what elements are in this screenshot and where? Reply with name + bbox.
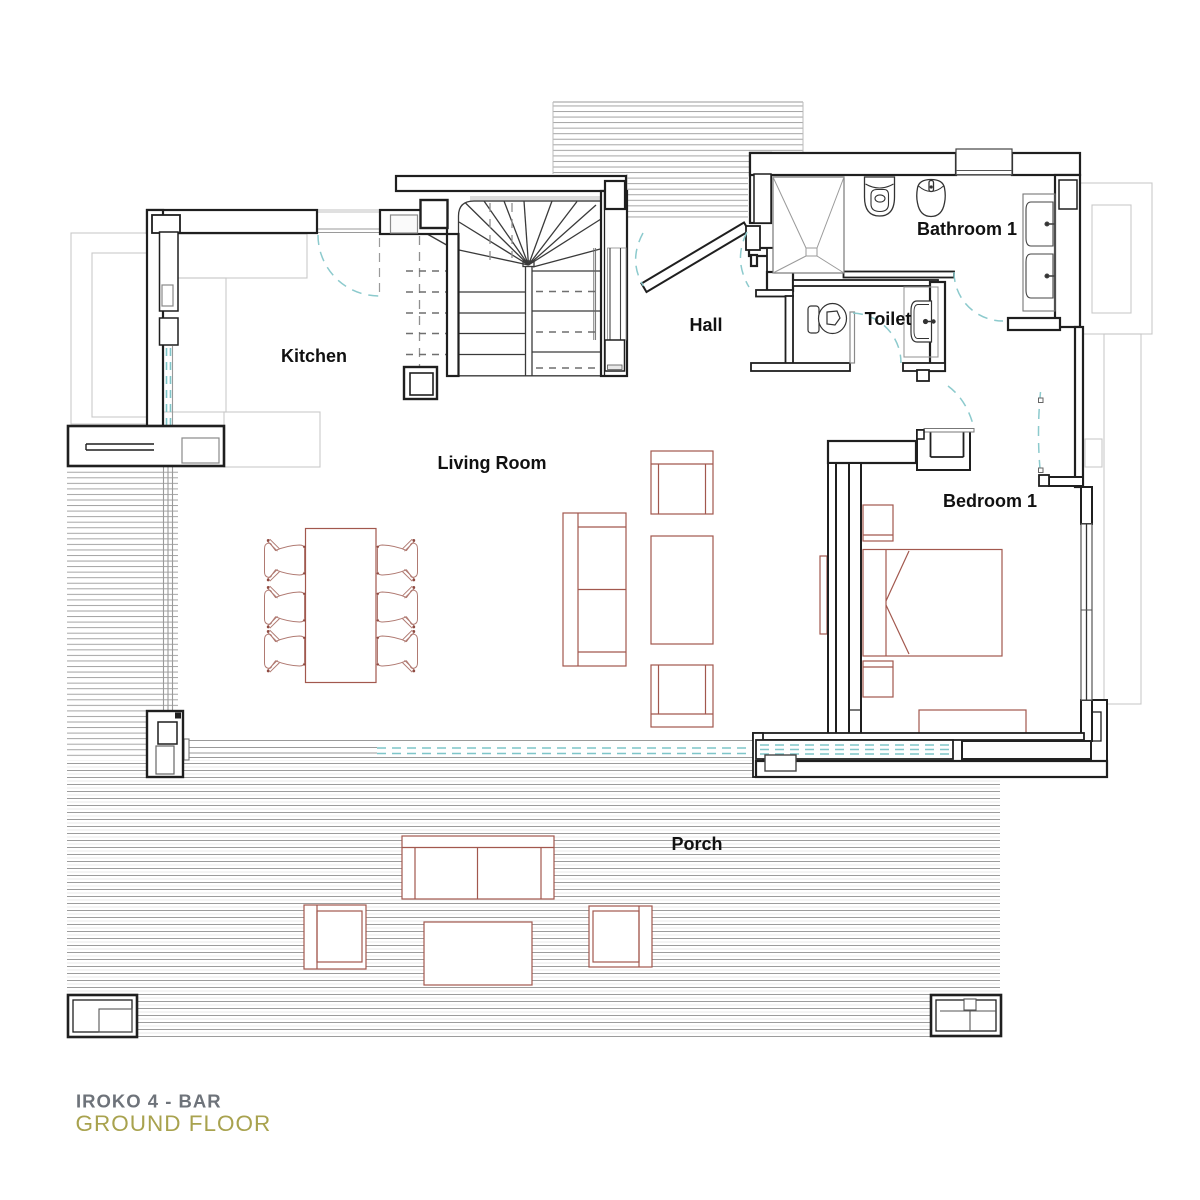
svg-text:Living Room: Living Room	[438, 453, 547, 473]
svg-text:IROKO 4 - BAR: IROKO 4 - BAR	[76, 1091, 222, 1112]
svg-text:Porch: Porch	[671, 834, 722, 854]
svg-text:Kitchen: Kitchen	[281, 346, 347, 366]
svg-text:Toilet: Toilet	[865, 309, 912, 329]
svg-text:GROUND FLOOR: GROUND FLOOR	[76, 1111, 272, 1136]
svg-text:Bedroom 1: Bedroom 1	[943, 491, 1037, 511]
svg-text:Hall: Hall	[689, 315, 722, 335]
svg-text:Bathroom 1: Bathroom 1	[917, 219, 1017, 239]
